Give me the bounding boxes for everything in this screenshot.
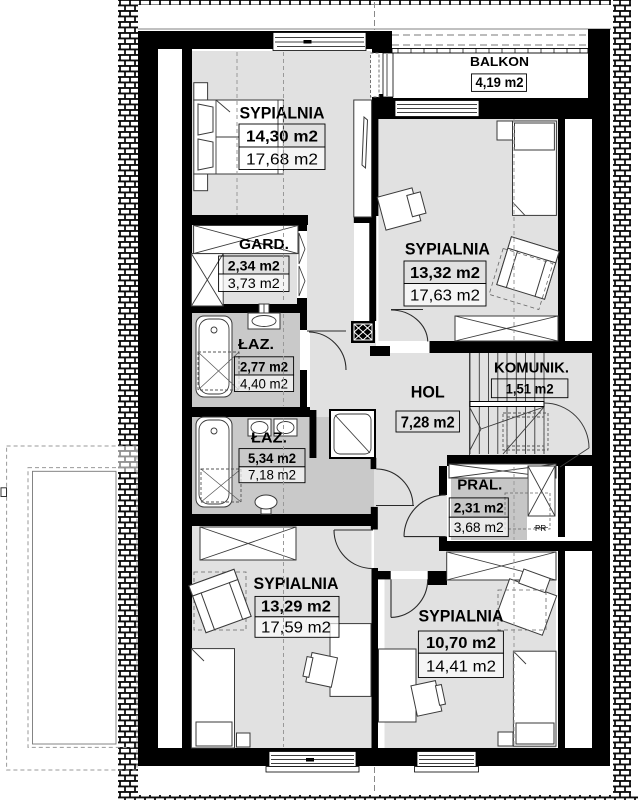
- svg-text:SYPIALNIA: SYPIALNIA: [419, 606, 504, 625]
- svg-text:2,77 m2: 2,77 m2: [240, 359, 288, 375]
- svg-text:HOL: HOL: [411, 383, 445, 402]
- svg-text:BALKON: BALKON: [470, 54, 529, 69]
- svg-text:17,68 m2: 17,68 m2: [246, 152, 318, 169]
- svg-text:3,68 m2: 3,68 m2: [454, 519, 504, 535]
- svg-text:2,31 m2: 2,31 m2: [454, 500, 504, 516]
- svg-text:SYPIALNIA: SYPIALNIA: [405, 240, 490, 259]
- svg-text:ŁAZ.: ŁAZ.: [251, 430, 287, 447]
- svg-text:PRAL.: PRAL.: [457, 477, 502, 494]
- svg-text:17,59 m2: 17,59 m2: [261, 620, 331, 637]
- svg-text:10,70 m2: 10,70 m2: [426, 635, 496, 652]
- svg-text:14,41 m2: 14,41 m2: [426, 659, 496, 676]
- svg-text:7,18 m2: 7,18 m2: [248, 467, 296, 483]
- svg-text:SYPIALNIA: SYPIALNIA: [240, 104, 325, 123]
- svg-text:13,29 m2: 13,29 m2: [261, 599, 331, 616]
- svg-text:7,28 m2: 7,28 m2: [401, 415, 455, 432]
- svg-text:17,63 m2: 17,63 m2: [410, 288, 480, 305]
- svg-text:KOMUNIK.: KOMUNIK.: [494, 360, 569, 377]
- svg-text:4,19 m2: 4,19 m2: [476, 75, 524, 90]
- svg-text:ŁAZ.: ŁAZ.: [238, 336, 274, 353]
- svg-text:GARD.: GARD.: [239, 236, 289, 253]
- svg-text:PR: PR: [535, 524, 546, 533]
- svg-text:13,32 m2: 13,32 m2: [410, 265, 480, 282]
- svg-text:2,34 m2: 2,34 m2: [228, 258, 280, 274]
- svg-text:4,40 m2: 4,40 m2: [240, 376, 288, 392]
- svg-text:5,34 m2: 5,34 m2: [248, 450, 296, 466]
- svg-text:3,73 m2: 3,73 m2: [228, 275, 280, 291]
- svg-text:SYPIALNIA: SYPIALNIA: [254, 574, 339, 593]
- svg-text:14,30 m2: 14,30 m2: [246, 129, 318, 146]
- svg-text:1,51 m2: 1,51 m2: [506, 381, 554, 397]
